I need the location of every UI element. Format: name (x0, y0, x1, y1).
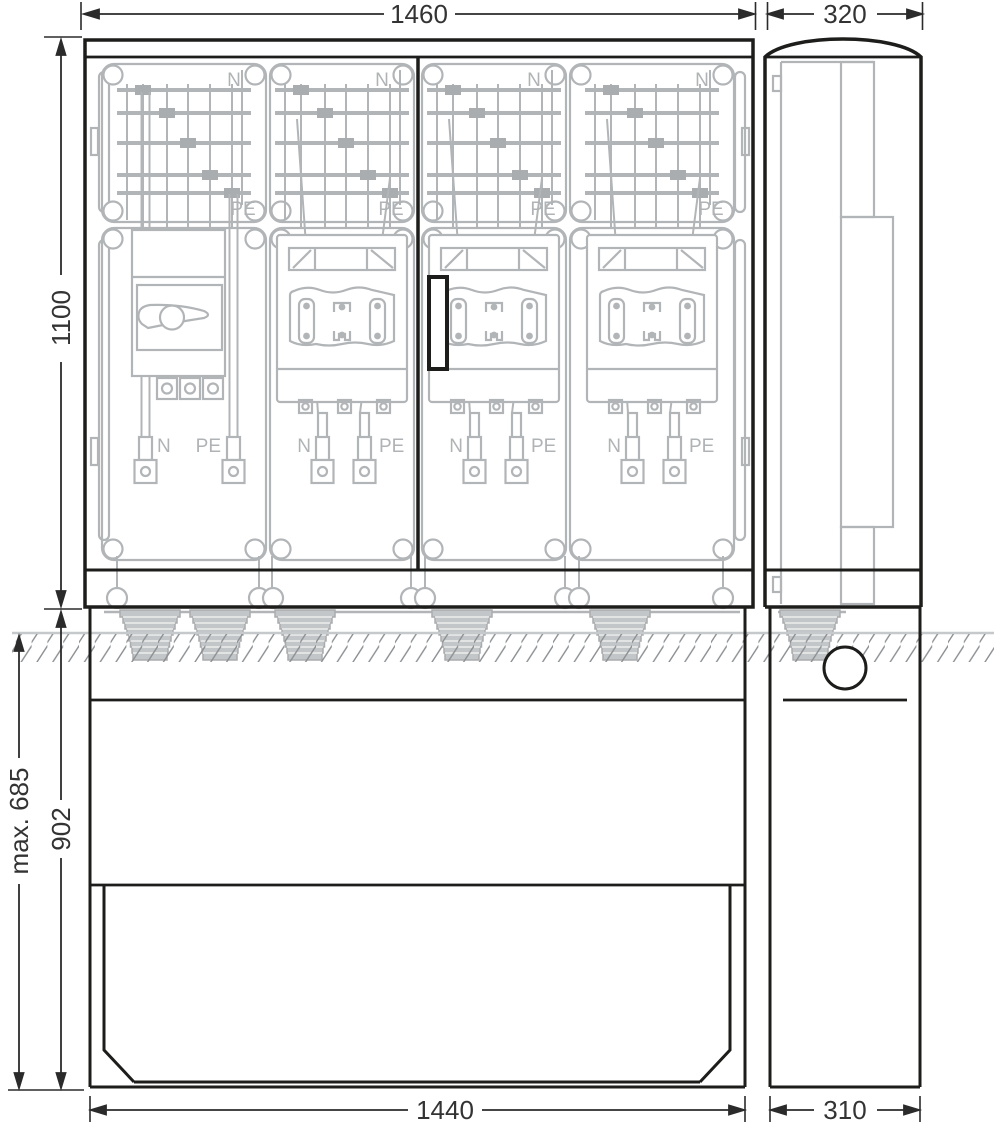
left-hinge-detail (91, 438, 98, 465)
busbar-pe-label-3: PE (530, 199, 555, 220)
dim-side-depth-top: 320 (823, 0, 866, 29)
busbar-n-label-3: N (527, 70, 541, 91)
dim-cabinet-height: 1100 (46, 290, 76, 346)
lug-pe-label-1: PE (196, 436, 221, 457)
side-pedestal (770, 607, 920, 1087)
lug-pe-label-2: PE (379, 436, 404, 457)
dim-base-height: 902 (46, 807, 76, 850)
lug-n-label-3: N (449, 436, 463, 457)
left-hinge-detail (91, 128, 98, 155)
lug-n-label-2: N (297, 436, 311, 457)
lug-n-label-4: N (607, 436, 621, 457)
lug-n-label-1: N (157, 436, 171, 457)
side-hinge-detail (773, 76, 781, 91)
dim-max-depth: max. 685 (4, 768, 34, 875)
busbar-pe-label-1: PE (230, 199, 255, 220)
dim-front-width-top: 1460 (390, 0, 448, 29)
busbar-n-label-1: N (227, 70, 241, 91)
drawing-page: N N N N PE PE PE PE N PE N PE N PE N PE (0, 0, 1000, 1127)
busbar-n-label-2: N (375, 70, 389, 91)
door-handle (429, 277, 447, 369)
dim-side-depth-bottom: 310 (823, 1095, 866, 1125)
busbar-n-label-4: N (695, 70, 709, 91)
side-hinge-detail (773, 577, 781, 592)
dim-front-width-bottom: 1440 (416, 1095, 474, 1125)
cable-distribution-cabinet-drawing: N N N N PE PE PE PE N PE N PE N PE N PE (0, 0, 1000, 1127)
lug-pe-label-4: PE (689, 436, 714, 457)
busbar-pe-label-4: PE (698, 199, 723, 220)
side-door-edge (781, 62, 874, 604)
front-view-interior (91, 64, 749, 612)
front-pedestal (90, 607, 745, 1087)
switch-disconnector (132, 230, 225, 399)
lug-pe-label-3: PE (531, 436, 556, 457)
side-view-interior (773, 62, 893, 612)
side-view-frame (765, 39, 921, 607)
busbar-pe-label-2: PE (378, 199, 403, 220)
dimensions (8, 2, 923, 1122)
cable-entry-hole (824, 647, 866, 689)
